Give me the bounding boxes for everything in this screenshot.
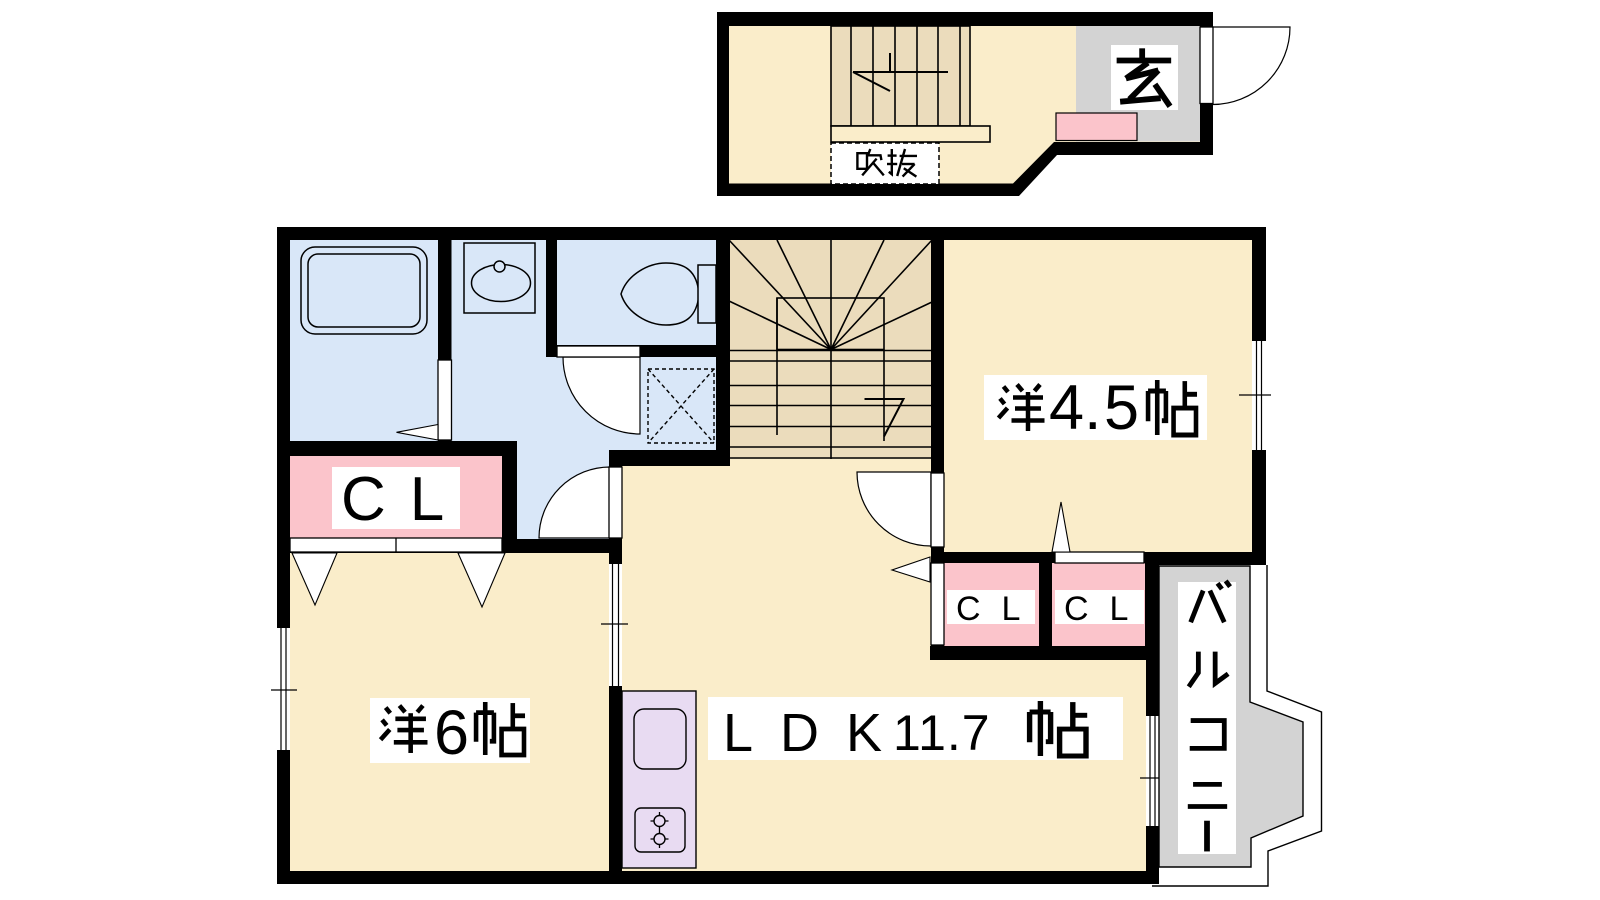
svg-text:6: 6 [434, 698, 469, 768]
svg-text:11.7: 11.7 [893, 705, 991, 761]
svg-text:5: 5 [1104, 373, 1139, 443]
svg-text:CL: CL [1064, 590, 1149, 628]
svg-text:LDK: LDK [723, 703, 909, 763]
svg-text:CL: CL [956, 590, 1041, 628]
svg-text:CL: CL [341, 465, 468, 534]
svg-text:4.: 4. [1049, 373, 1102, 443]
